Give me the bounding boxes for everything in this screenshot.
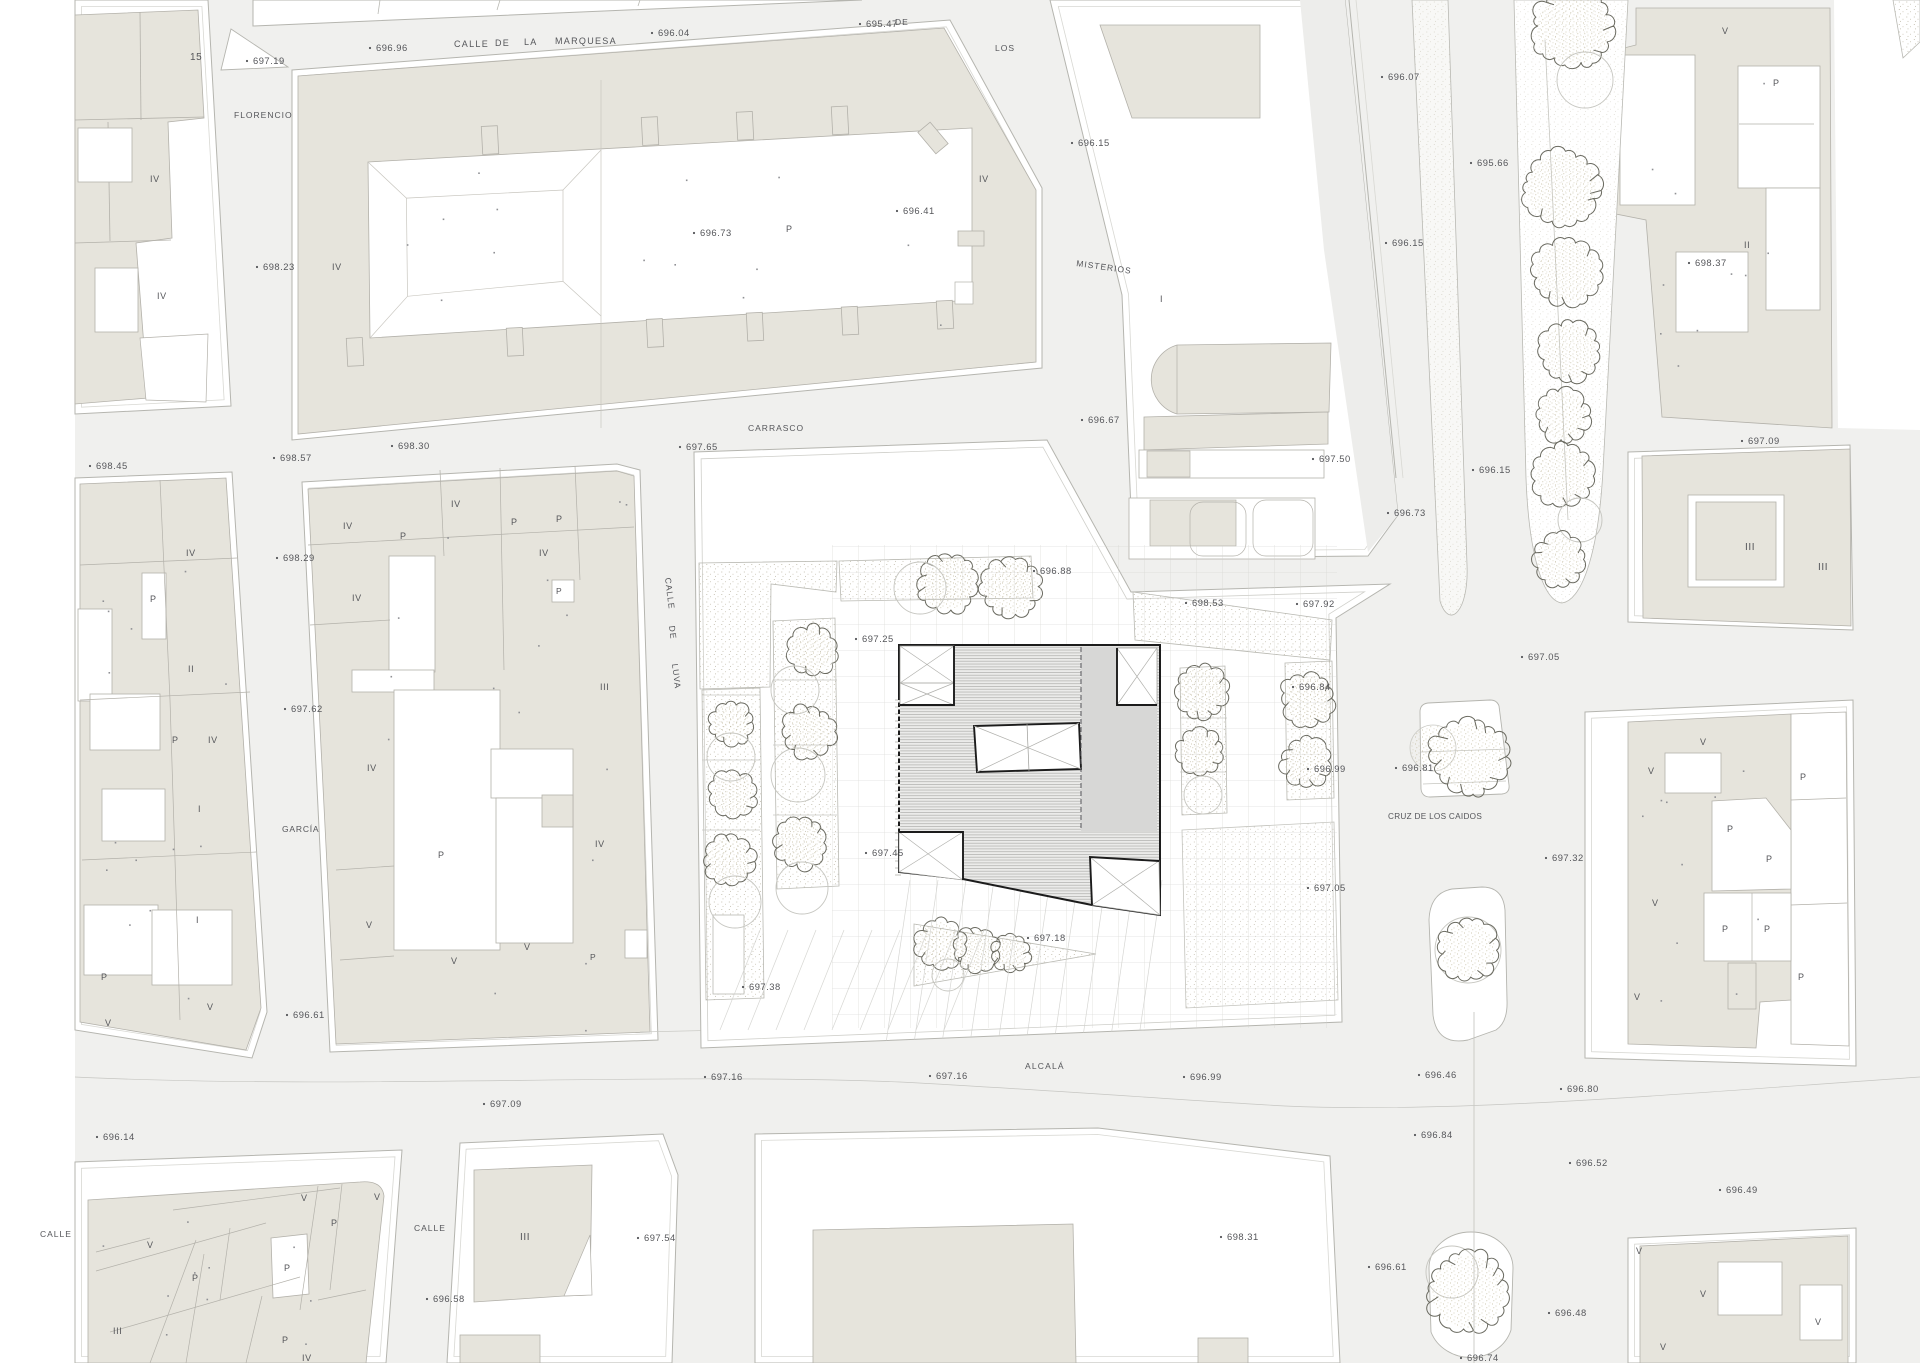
svg-text:15: 15 bbox=[190, 52, 202, 63]
svg-text:697.50: 697.50 bbox=[1319, 453, 1351, 464]
svg-text:P: P bbox=[1766, 854, 1773, 864]
svg-text:P: P bbox=[331, 1218, 338, 1228]
svg-text:V: V bbox=[1634, 992, 1641, 1002]
svg-text:CALLE: CALLE bbox=[40, 1229, 72, 1239]
svg-text:696.73: 696.73 bbox=[700, 227, 732, 238]
svg-text:696.58: 696.58 bbox=[433, 1293, 465, 1304]
svg-text:697.62: 697.62 bbox=[291, 703, 323, 714]
svg-text:IV: IV bbox=[979, 174, 989, 184]
svg-text:696.84: 696.84 bbox=[1299, 681, 1331, 692]
svg-text:697.05: 697.05 bbox=[1528, 651, 1560, 662]
svg-text:696.61: 696.61 bbox=[293, 1009, 325, 1020]
svg-text:IV: IV bbox=[451, 499, 461, 509]
svg-text:697.09: 697.09 bbox=[490, 1098, 522, 1109]
svg-text:696.88: 696.88 bbox=[1040, 565, 1072, 576]
svg-text:P: P bbox=[1800, 772, 1807, 782]
svg-text:III: III bbox=[1745, 542, 1755, 553]
svg-text:IV: IV bbox=[595, 839, 605, 849]
svg-text:P: P bbox=[282, 1335, 289, 1345]
svg-text:IV: IV bbox=[186, 548, 196, 558]
svg-text:696.84: 696.84 bbox=[1421, 1129, 1453, 1140]
svg-text:696.96: 696.96 bbox=[376, 42, 408, 53]
svg-text:III: III bbox=[1818, 562, 1828, 573]
svg-text:IV: IV bbox=[302, 1353, 312, 1363]
svg-text:P: P bbox=[1798, 972, 1805, 982]
svg-text:698.45: 698.45 bbox=[96, 460, 128, 471]
svg-text:I: I bbox=[196, 915, 199, 925]
svg-text:695.66: 695.66 bbox=[1477, 157, 1509, 168]
svg-text:696.48: 696.48 bbox=[1555, 1307, 1587, 1318]
svg-text:696.15: 696.15 bbox=[1479, 464, 1511, 475]
svg-text:697.16: 697.16 bbox=[711, 1071, 743, 1082]
svg-text:P: P bbox=[556, 586, 562, 596]
svg-text:696.46: 696.46 bbox=[1425, 1069, 1457, 1080]
svg-text:P: P bbox=[1727, 824, 1734, 834]
svg-text:IV: IV bbox=[208, 735, 218, 745]
svg-text:V: V bbox=[1652, 898, 1659, 908]
svg-text:II: II bbox=[188, 664, 194, 674]
svg-text:V: V bbox=[524, 942, 531, 952]
svg-text:697.18: 697.18 bbox=[1034, 932, 1066, 943]
svg-text:V: V bbox=[374, 1192, 381, 1202]
svg-text:696.81: 696.81 bbox=[1402, 762, 1434, 773]
svg-text:P: P bbox=[438, 850, 445, 860]
svg-text:P: P bbox=[284, 1263, 291, 1273]
svg-text:IV: IV bbox=[150, 174, 160, 184]
svg-text:I: I bbox=[1160, 294, 1163, 304]
svg-text:V: V bbox=[1700, 737, 1707, 747]
svg-text:V: V bbox=[451, 956, 458, 966]
svg-text:P: P bbox=[101, 972, 108, 982]
svg-text:V: V bbox=[207, 1002, 214, 1012]
svg-text:697.45: 697.45 bbox=[872, 847, 904, 858]
svg-text:698.23: 698.23 bbox=[263, 261, 295, 272]
svg-text:IV: IV bbox=[367, 763, 377, 773]
svg-text:CALLE: CALLE bbox=[414, 1223, 446, 1233]
svg-text:DE: DE bbox=[495, 38, 510, 48]
svg-text:P: P bbox=[400, 531, 407, 541]
svg-text:697.09: 697.09 bbox=[1748, 435, 1780, 446]
svg-text:V: V bbox=[1722, 26, 1729, 36]
svg-text:696.99: 696.99 bbox=[1190, 1071, 1222, 1082]
svg-text:V: V bbox=[366, 920, 373, 930]
svg-text:IV: IV bbox=[343, 521, 353, 531]
svg-text:696.74: 696.74 bbox=[1467, 1352, 1499, 1363]
svg-text:697.19: 697.19 bbox=[253, 55, 285, 66]
svg-text:696.07: 696.07 bbox=[1388, 71, 1420, 82]
svg-text:696.73: 696.73 bbox=[1394, 507, 1426, 518]
svg-text:695.47: 695.47 bbox=[866, 18, 898, 29]
svg-text:697.92: 697.92 bbox=[1303, 598, 1335, 609]
svg-text:696.80: 696.80 bbox=[1567, 1083, 1599, 1094]
svg-text:V: V bbox=[301, 1193, 308, 1203]
svg-text:696.99: 696.99 bbox=[1314, 763, 1346, 774]
svg-text:III: III bbox=[113, 1326, 122, 1336]
svg-text:696.14: 696.14 bbox=[103, 1131, 135, 1142]
svg-text:I: I bbox=[198, 804, 201, 814]
svg-text:IV: IV bbox=[332, 262, 342, 272]
svg-text:III: III bbox=[520, 1232, 530, 1243]
svg-text:697.32: 697.32 bbox=[1552, 852, 1584, 863]
svg-text:P: P bbox=[786, 224, 793, 234]
svg-text:696.15: 696.15 bbox=[1392, 237, 1424, 248]
svg-text:P: P bbox=[1773, 78, 1780, 88]
svg-text:MARQUESA: MARQUESA bbox=[555, 36, 617, 46]
svg-text:LA: LA bbox=[524, 37, 538, 47]
svg-text:V: V bbox=[105, 1018, 112, 1028]
svg-text:696.04: 696.04 bbox=[658, 27, 690, 38]
svg-text:P: P bbox=[150, 594, 157, 604]
svg-text:697.38: 697.38 bbox=[749, 981, 781, 992]
svg-text:CALLE: CALLE bbox=[454, 39, 489, 49]
svg-text:ALCALÁ: ALCALÁ bbox=[1025, 1061, 1065, 1071]
svg-text:P: P bbox=[1764, 924, 1771, 934]
svg-text:V: V bbox=[1815, 1317, 1822, 1327]
svg-text:CRUZ DE LOS CAIDOS: CRUZ DE LOS CAIDOS bbox=[1388, 812, 1482, 821]
svg-text:FLORENCIO: FLORENCIO bbox=[234, 110, 293, 120]
svg-text:V: V bbox=[1700, 1289, 1707, 1299]
svg-text:696.61: 696.61 bbox=[1375, 1261, 1407, 1272]
svg-text:II: II bbox=[1744, 240, 1750, 250]
svg-text:698.30: 698.30 bbox=[398, 440, 430, 451]
svg-text:DE: DE bbox=[667, 625, 679, 640]
svg-text:697.16: 697.16 bbox=[936, 1070, 968, 1081]
svg-text:696.67: 696.67 bbox=[1088, 414, 1120, 425]
svg-text:697.54: 697.54 bbox=[644, 1232, 676, 1243]
svg-text:P: P bbox=[511, 517, 518, 527]
svg-text:V: V bbox=[1660, 1342, 1667, 1352]
svg-text:IV: IV bbox=[157, 291, 167, 301]
svg-text:P: P bbox=[556, 514, 563, 524]
svg-text:III: III bbox=[600, 682, 609, 692]
svg-text:698.53: 698.53 bbox=[1192, 597, 1224, 608]
svg-text:697.05: 697.05 bbox=[1314, 882, 1346, 893]
svg-text:698.37: 698.37 bbox=[1695, 257, 1727, 268]
svg-text:CARRASCO: CARRASCO bbox=[748, 423, 804, 433]
svg-text:696.15: 696.15 bbox=[1078, 137, 1110, 148]
svg-text:697.25: 697.25 bbox=[862, 633, 894, 644]
svg-text:696.52: 696.52 bbox=[1576, 1157, 1608, 1168]
svg-text:P: P bbox=[192, 1273, 199, 1283]
svg-text:P: P bbox=[172, 735, 179, 745]
svg-text:IV: IV bbox=[352, 593, 362, 603]
svg-text:GARCÍA: GARCÍA bbox=[282, 824, 319, 834]
svg-text:698.29: 698.29 bbox=[283, 552, 315, 563]
svg-text:IV: IV bbox=[539, 548, 549, 558]
svg-text:697.65: 697.65 bbox=[686, 441, 718, 452]
svg-text:P: P bbox=[590, 952, 596, 962]
svg-text:696.41: 696.41 bbox=[903, 205, 935, 216]
svg-text:V: V bbox=[1648, 766, 1655, 776]
svg-text:696.49: 696.49 bbox=[1726, 1184, 1758, 1195]
svg-text:698.31: 698.31 bbox=[1227, 1231, 1259, 1242]
svg-text:V: V bbox=[147, 1240, 154, 1250]
svg-text:698.57: 698.57 bbox=[280, 452, 312, 463]
svg-text:V: V bbox=[1636, 1246, 1643, 1256]
svg-text:P: P bbox=[1722, 924, 1729, 934]
svg-text:LOS: LOS bbox=[995, 43, 1015, 53]
